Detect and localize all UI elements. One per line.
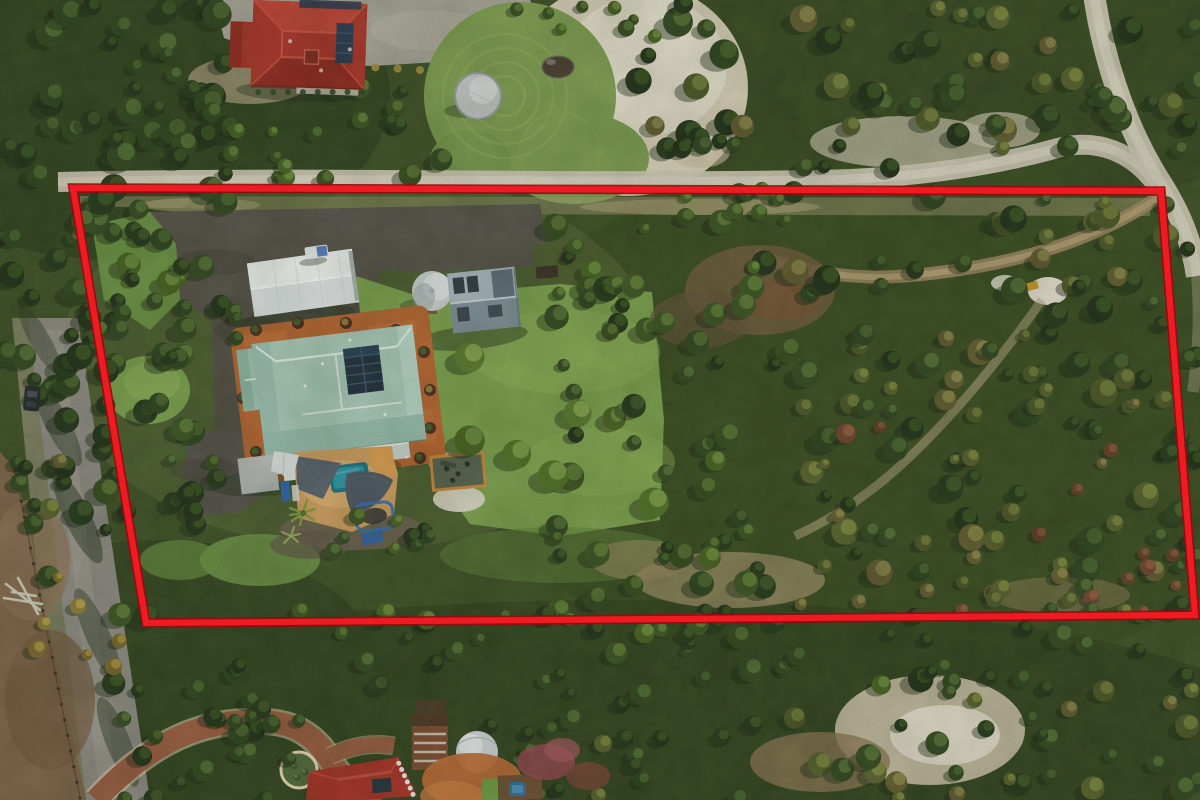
grain-overlay <box>0 0 1200 800</box>
aerial-property-photo <box>0 0 1200 800</box>
aerial-photo-canvas <box>0 0 1200 800</box>
